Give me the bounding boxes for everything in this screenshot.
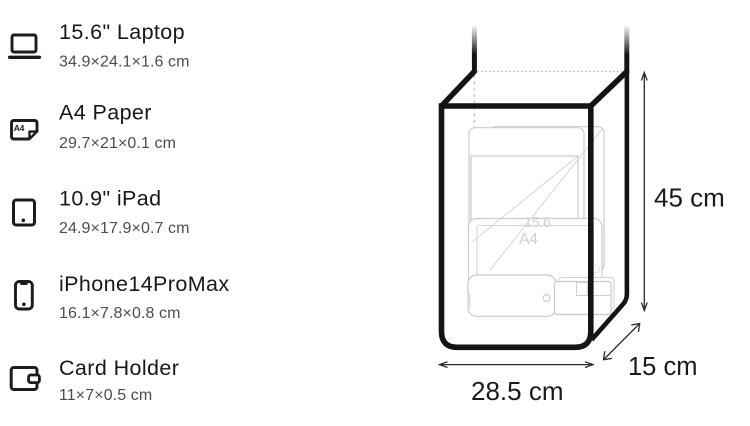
svg-text:11×7×0.5 cm: 11×7×0.5 cm bbox=[59, 387, 152, 404]
svg-text:28.5 cm: 28.5 cm bbox=[471, 376, 564, 406]
svg-text:iPhone14ProMax: iPhone14ProMax bbox=[59, 272, 230, 296]
svg-text:15.6" Laptop: 15.6" Laptop bbox=[59, 20, 185, 44]
svg-text:A4: A4 bbox=[519, 231, 538, 248]
svg-text:Card Holder: Card Holder bbox=[59, 356, 179, 380]
svg-text:16.1×7.8×0.8 cm: 16.1×7.8×0.8 cm bbox=[59, 305, 181, 322]
svg-text:15.6: 15.6 bbox=[524, 215, 551, 231]
svg-text:34.9×24.1×1.6 cm: 34.9×24.1×1.6 cm bbox=[59, 54, 190, 71]
svg-text:15 cm: 15 cm bbox=[628, 353, 697, 381]
svg-text:A4 Paper: A4 Paper bbox=[59, 101, 152, 125]
svg-text:24.9×17.9×0.7 cm: 24.9×17.9×0.7 cm bbox=[59, 220, 190, 237]
svg-text:10.9" iPad: 10.9" iPad bbox=[59, 187, 161, 211]
svg-text:29.7×21×0.1 cm: 29.7×21×0.1 cm bbox=[59, 135, 176, 152]
svg-text:45 cm: 45 cm bbox=[654, 183, 725, 213]
svg-text:A4: A4 bbox=[14, 123, 25, 133]
